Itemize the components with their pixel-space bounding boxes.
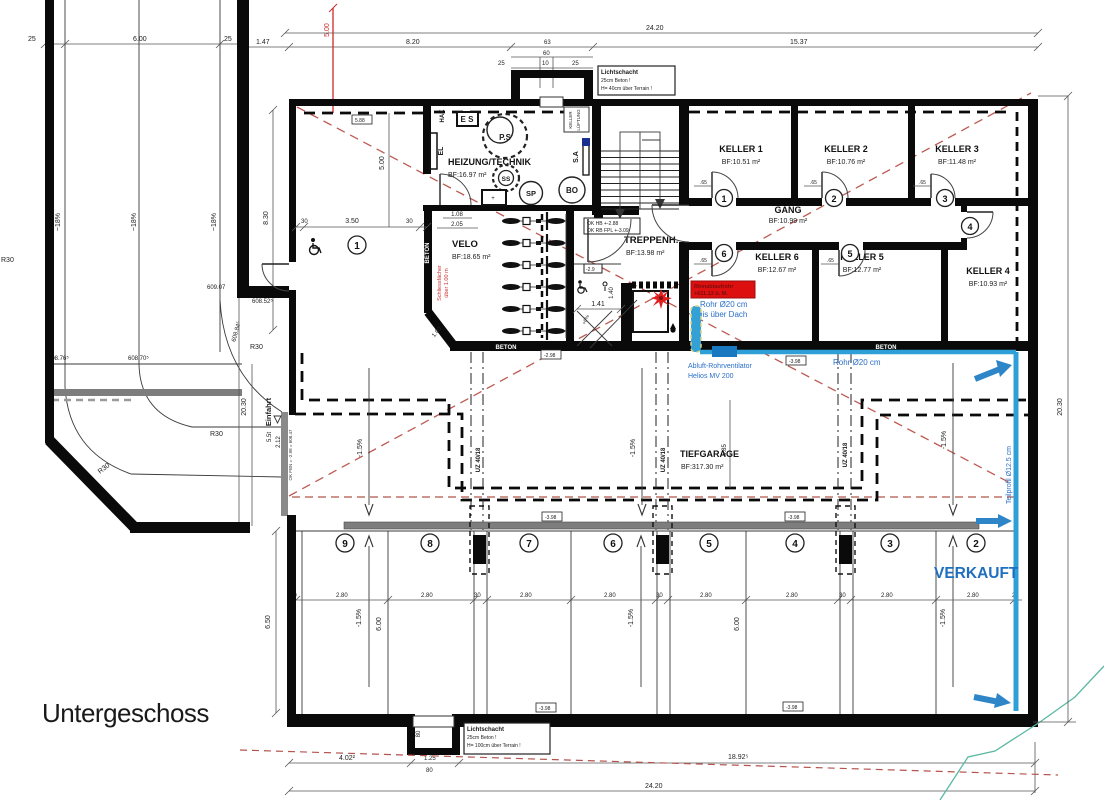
svg-text:6: 6 xyxy=(610,539,616,550)
svg-text:5: 5 xyxy=(847,249,852,259)
svg-text:OK HB +-2.88: OK HB +-2.88 xyxy=(587,221,618,227)
svg-text:~18%: ~18% xyxy=(131,213,138,231)
svg-text:24.20: 24.20 xyxy=(646,25,664,32)
svg-text:5.00: 5.00 xyxy=(379,156,386,170)
svg-text:1.25: 1.25 xyxy=(424,756,436,762)
svg-text:4: 4 xyxy=(792,539,798,550)
svg-text:BF:317.30 m²: BF:317.30 m² xyxy=(681,464,724,471)
svg-text:24.20: 24.20 xyxy=(645,783,663,790)
svg-text:-1.5%: -1.5% xyxy=(630,439,637,457)
svg-text:-2.9: -2.9 xyxy=(586,267,595,273)
svg-text:BF:10.99 m²: BF:10.99 m² xyxy=(769,218,808,225)
svg-text:TIEFGARAGE: TIEFGARAGE xyxy=(680,449,739,459)
svg-text:3.50: 3.50 xyxy=(345,218,359,225)
svg-text:-1.5%: -1.5% xyxy=(357,439,364,457)
svg-text:25: 25 xyxy=(224,36,232,43)
svg-text:2.80: 2.80 xyxy=(336,593,348,599)
svg-text:6.00: 6.00 xyxy=(133,36,147,43)
svg-text:18.92⁵: 18.92⁵ xyxy=(728,754,749,761)
svg-text:OK FBN = -2.98 = 608.47: OK FBN = -2.98 = 608.47 xyxy=(288,429,293,481)
svg-text:Rinnablaufrohr: Rinnablaufrohr xyxy=(694,284,734,290)
svg-text:7: 7 xyxy=(526,539,532,550)
svg-text:OK RB FPL +-3.09: OK RB FPL +-3.09 xyxy=(587,228,629,234)
svg-text:R30: R30 xyxy=(210,431,223,438)
svg-text:.65: .65 xyxy=(700,180,707,186)
svg-text:1.40: 1.40 xyxy=(609,287,615,299)
svg-text:25: 25 xyxy=(28,36,36,43)
svg-text:-3.98: -3.98 xyxy=(539,706,551,712)
svg-text:2.12: 2.12 xyxy=(276,436,282,448)
svg-text:8.20: 8.20 xyxy=(406,39,420,46)
svg-text:30: 30 xyxy=(839,593,846,599)
svg-text:BF:13.98 m²: BF:13.98 m² xyxy=(626,250,665,257)
svg-text:15.37: 15.37 xyxy=(790,39,808,46)
svg-text:80: 80 xyxy=(416,730,422,737)
svg-text:EL: EL xyxy=(438,146,445,156)
svg-text:Lichtschacht: Lichtschacht xyxy=(601,70,638,76)
svg-text:Schliessfächer: Schliessfächer xyxy=(437,265,443,301)
svg-text:Helios MV 200: Helios MV 200 xyxy=(688,373,734,380)
svg-text:HEIZUNG/TECHNIK: HEIZUNG/TECHNIK xyxy=(448,157,532,167)
svg-text:2.80: 2.80 xyxy=(421,593,433,599)
svg-text:UZ 40/18: UZ 40/18 xyxy=(843,442,849,467)
svg-text:H= 40cm über Terrain !: H= 40cm über Terrain ! xyxy=(601,86,652,92)
svg-text:S.A: S.A xyxy=(573,151,580,163)
svg-text:~18%: ~18% xyxy=(55,213,62,231)
svg-text:25: 25 xyxy=(498,61,505,67)
svg-text:4.02²: 4.02² xyxy=(339,755,356,762)
svg-text:BETON: BETON xyxy=(425,243,431,264)
svg-text:-3.98: -3.98 xyxy=(545,515,557,521)
svg-text:BF:12.67 m²: BF:12.67 m² xyxy=(758,267,797,274)
svg-text:609.07: 609.07 xyxy=(207,285,226,291)
svg-text:6.00: 6.00 xyxy=(376,617,383,631)
svg-text:BF:10.93 m²: BF:10.93 m² xyxy=(969,281,1008,288)
svg-text:+: + xyxy=(491,196,495,202)
svg-text:BF:12.77 m²: BF:12.77 m² xyxy=(843,267,882,274)
svg-text:VERKAUFT: VERKAUFT xyxy=(934,565,1019,582)
svg-text:6.00: 6.00 xyxy=(734,617,741,631)
svg-text:.65: .65 xyxy=(700,258,707,264)
svg-text:2.80: 2.80 xyxy=(520,593,532,599)
svg-text:2: 2 xyxy=(831,194,836,204)
svg-text:-3.98: -3.98 xyxy=(786,705,798,711)
svg-text:R30: R30 xyxy=(250,344,263,351)
svg-text:20.30: 20.30 xyxy=(241,398,248,416)
svg-text:1: 1 xyxy=(354,241,360,252)
svg-text:80: 80 xyxy=(426,768,433,774)
svg-text:8.30: 8.30 xyxy=(263,211,270,225)
svg-text:10: 10 xyxy=(542,61,549,67)
svg-text:SP: SP xyxy=(526,189,536,198)
svg-text:1.47: 1.47 xyxy=(256,39,270,46)
svg-text:20.30: 20.30 xyxy=(1057,398,1064,416)
svg-text:Rohr Ø20 cm: Rohr Ø20 cm xyxy=(833,358,881,367)
svg-text:30: 30 xyxy=(474,593,481,599)
svg-text:BF:10.51 m²: BF:10.51 m² xyxy=(722,159,761,166)
svg-text:Teilprofil Ø12.5 cm: Teilprofil Ø12.5 cm xyxy=(1006,446,1013,504)
svg-text:KELLER 2: KELLER 2 xyxy=(824,144,868,154)
svg-text:+611.13 ü. M.: +611.13 ü. M. xyxy=(694,291,728,297)
svg-text:2.80: 2.80 xyxy=(604,593,616,599)
svg-text:2: 2 xyxy=(973,539,979,550)
svg-text:KELLER 1: KELLER 1 xyxy=(719,144,763,154)
svg-text:~18%: ~18% xyxy=(211,213,218,231)
svg-text:30: 30 xyxy=(656,593,663,599)
svg-text:bis über Dach: bis über Dach xyxy=(698,310,747,319)
svg-text:HAK: HAK xyxy=(440,109,446,123)
svg-text:BETON: BETON xyxy=(496,345,517,351)
svg-text:.65: .65 xyxy=(810,180,817,186)
svg-text:BF:10.76 m²: BF:10.76 m² xyxy=(827,159,866,166)
svg-text:Abluft-Rohrventilator: Abluft-Rohrventilator xyxy=(688,363,752,370)
svg-text:608.70⁵: 608.70⁵ xyxy=(128,355,149,362)
svg-text:GANG: GANG xyxy=(775,205,802,215)
svg-text:Lichtschacht: Lichtschacht xyxy=(467,727,504,733)
svg-text:BO: BO xyxy=(566,186,578,195)
svg-text:60: 60 xyxy=(543,51,550,57)
svg-text:30: 30 xyxy=(406,219,413,225)
svg-text:UZ 40/18: UZ 40/18 xyxy=(476,447,482,472)
svg-text:608.52⁵: 608.52⁵ xyxy=(252,298,273,305)
svg-text:R30: R30 xyxy=(1,257,14,264)
svg-text:BF:18.65 m²: BF:18.65 m² xyxy=(452,254,491,261)
svg-text:25cm Beton !: 25cm Beton ! xyxy=(467,735,496,741)
svg-text:25: 25 xyxy=(572,61,579,67)
svg-text:VELO: VELO xyxy=(452,239,478,250)
svg-text:6: 6 xyxy=(721,249,726,259)
svg-text:25cm Beton !: 25cm Beton ! xyxy=(601,78,630,84)
svg-text:Untergeschoss: Untergeschoss xyxy=(42,698,209,728)
svg-text:9: 9 xyxy=(342,539,348,550)
svg-text:5: 5 xyxy=(706,539,712,550)
svg-text:KELLER 4: KELLER 4 xyxy=(966,266,1010,276)
svg-text:-3.98: -3.98 xyxy=(788,515,800,521)
svg-text:P.S: P.S xyxy=(499,133,512,142)
svg-text:.65: .65 xyxy=(919,180,926,186)
svg-text:-1.5%: -1.5% xyxy=(941,431,948,449)
svg-text:8: 8 xyxy=(427,539,433,550)
svg-text:63: 63 xyxy=(544,40,551,46)
svg-text:-2.98: -2.98 xyxy=(544,353,556,359)
svg-text:2.80: 2.80 xyxy=(786,593,798,599)
svg-text:4: 4 xyxy=(967,222,972,232)
svg-text:über 1.00 m: über 1.00 m xyxy=(444,268,450,298)
svg-text:6.50: 6.50 xyxy=(265,615,272,629)
svg-text:1: 1 xyxy=(721,194,726,204)
svg-text:-3.98: -3.98 xyxy=(789,359,801,365)
svg-text:KELLER 6: KELLER 6 xyxy=(755,252,799,262)
svg-text:Rohr Ø20 cm: Rohr Ø20 cm xyxy=(700,300,748,309)
svg-text:2.05: 2.05 xyxy=(451,222,463,228)
svg-text:.65: .65 xyxy=(827,258,834,264)
svg-text:2.80: 2.80 xyxy=(967,593,979,599)
svg-text:5.5t: 5.5t xyxy=(267,432,273,442)
svg-text:Einfahrt: Einfahrt xyxy=(264,397,273,426)
svg-text:KELLER 3: KELLER 3 xyxy=(935,144,979,154)
svg-text:1.41: 1.41 xyxy=(591,301,605,308)
svg-text:-1.5%: -1.5% xyxy=(940,609,947,627)
svg-text:H= 100cm über Terrain !: H= 100cm über Terrain ! xyxy=(467,743,521,749)
svg-text:KELLER: KELLER xyxy=(568,111,573,129)
svg-text:1.08: 1.08 xyxy=(451,212,463,218)
svg-text:E S: E S xyxy=(461,115,475,124)
svg-text:2.80: 2.80 xyxy=(881,593,893,599)
svg-text:UZ 40/18: UZ 40/18 xyxy=(661,447,667,472)
svg-text:BF:11.48 m²: BF:11.48 m² xyxy=(938,159,977,166)
svg-text:2.80: 2.80 xyxy=(700,593,712,599)
svg-text:5.00: 5.00 xyxy=(324,23,331,37)
svg-text:SS: SS xyxy=(502,176,511,183)
svg-text:-1.5%: -1.5% xyxy=(356,609,363,627)
svg-text:3: 3 xyxy=(942,194,947,204)
svg-text:LÜFTUNG: LÜFTUNG xyxy=(575,109,581,131)
svg-text:30: 30 xyxy=(301,219,308,225)
svg-text:3: 3 xyxy=(887,539,893,550)
svg-text:5.88: 5.88 xyxy=(355,118,365,124)
svg-text:-1.5%: -1.5% xyxy=(628,609,635,627)
svg-text:BF:16.97 m²: BF:16.97 m² xyxy=(448,172,487,179)
